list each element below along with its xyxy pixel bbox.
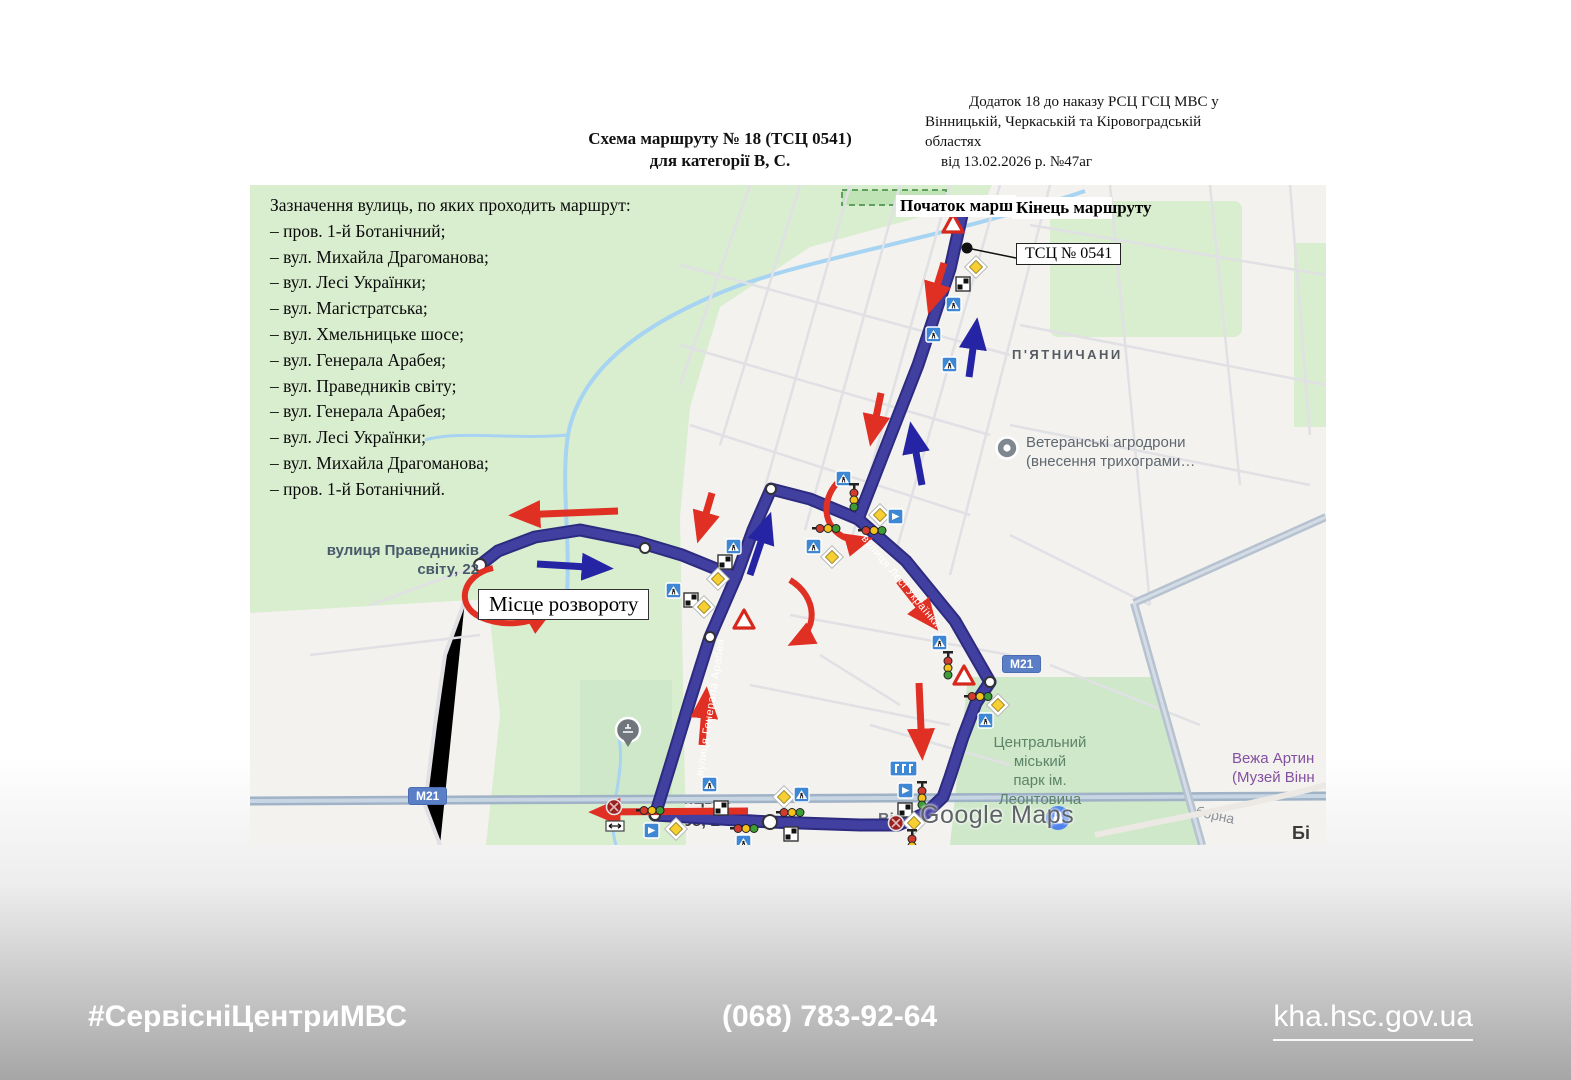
page: { "header": { "title_line1": "Схема марш… [0,0,1571,1080]
street-list-item: – пров. 1-й Ботанічний; [270,219,730,245]
street-list-heading: Зазначення вулиць, по яких проходить мар… [270,193,730,219]
document-title-line1: Схема маршруту № 18 (ТСЦ 0541) [555,128,885,150]
annex-line1: Додаток 18 до наказу РСЦ ГСЦ МВС у [925,92,1225,112]
footer-phone: (068) 783-92-64 [722,1000,937,1034]
document-title: Схема маршруту № 18 (ТСЦ 0541) для катег… [555,128,885,172]
document-title-line2: для категорії В, С. [555,150,885,172]
route-start-label: Початок маршруту [896,195,1016,217]
street-list-item: – вул. Лесі Українки; [270,270,730,296]
park-label: Центральний міський парк ім. Леонтовича [978,733,1102,809]
arabeya-street-label: вулиця Генерала Арабея [694,638,728,777]
tsc-callout-box: ТСЦ № 0541 [1016,243,1121,265]
annex-line2: Вінницькій, Черкаській та Кіровоградські… [925,112,1225,132]
ukrainky-street-label: вулиця Лесі Українки [859,533,943,630]
street-list-item: – вул. Михайла Драгоманова; [270,451,730,477]
street-list-item: – вул. Михайла Драгоманова; [270,245,730,271]
district-label: П'ЯТНИЧАНИ [1012,347,1123,362]
google-maps-watermark: Google Maps [920,801,1074,830]
m21-road-badge: М21 [1002,655,1041,673]
street-list-item: – вул. Праведників світу; [270,374,730,400]
turnaround-callout-box: Місце розвороту [478,589,649,620]
street-list-item: – пров. 1-й Ботанічний. [270,477,730,503]
route-end-label: Кінець маршруту [1012,197,1112,219]
route-map[interactable]: Хмельницьке шосе, 2 Вінни Серві вулиця С… [250,185,1326,845]
street-list: Зазначення вулиць, по яких проходить мар… [270,193,730,503]
street-list-item: – вул. Генерала Арабея; [270,348,730,374]
annex-line4: від 13.02.2026 р. №47аг [925,152,1225,172]
agro-poi-label: Ветеранські агродрони (внесення трихогра… [1026,433,1195,471]
street-list-item: – вул. Магістратська; [270,296,730,322]
annex-reference: Додаток 18 до наказу РСЦ ГСЦ МВС у Вінни… [925,92,1225,172]
street-list-item: – вул. Лесі Українки; [270,425,730,451]
museum-label: Вежа Артин (Музей Вінн [1232,749,1315,787]
annex-line3: областях [925,132,1225,152]
footer-hashtag: #СервісніЦентриМВС [88,1000,407,1034]
map-labels-over: вулиця Генерала Арабея вулиця Лесі Украї… [250,185,1326,845]
m21-road-badge: М21 [408,787,447,805]
street-list-item: – вул. Генерала Арабея; [270,399,730,425]
turnaround-address-label: вулиця Праведників світу, 22 [305,541,479,579]
street-list-item: – вул. Хмельницьке шосе; [270,322,730,348]
corner-label-partial: Бі [1292,823,1310,844]
footer-website-link[interactable]: kha.hsc.gov.ua [1273,1000,1473,1041]
